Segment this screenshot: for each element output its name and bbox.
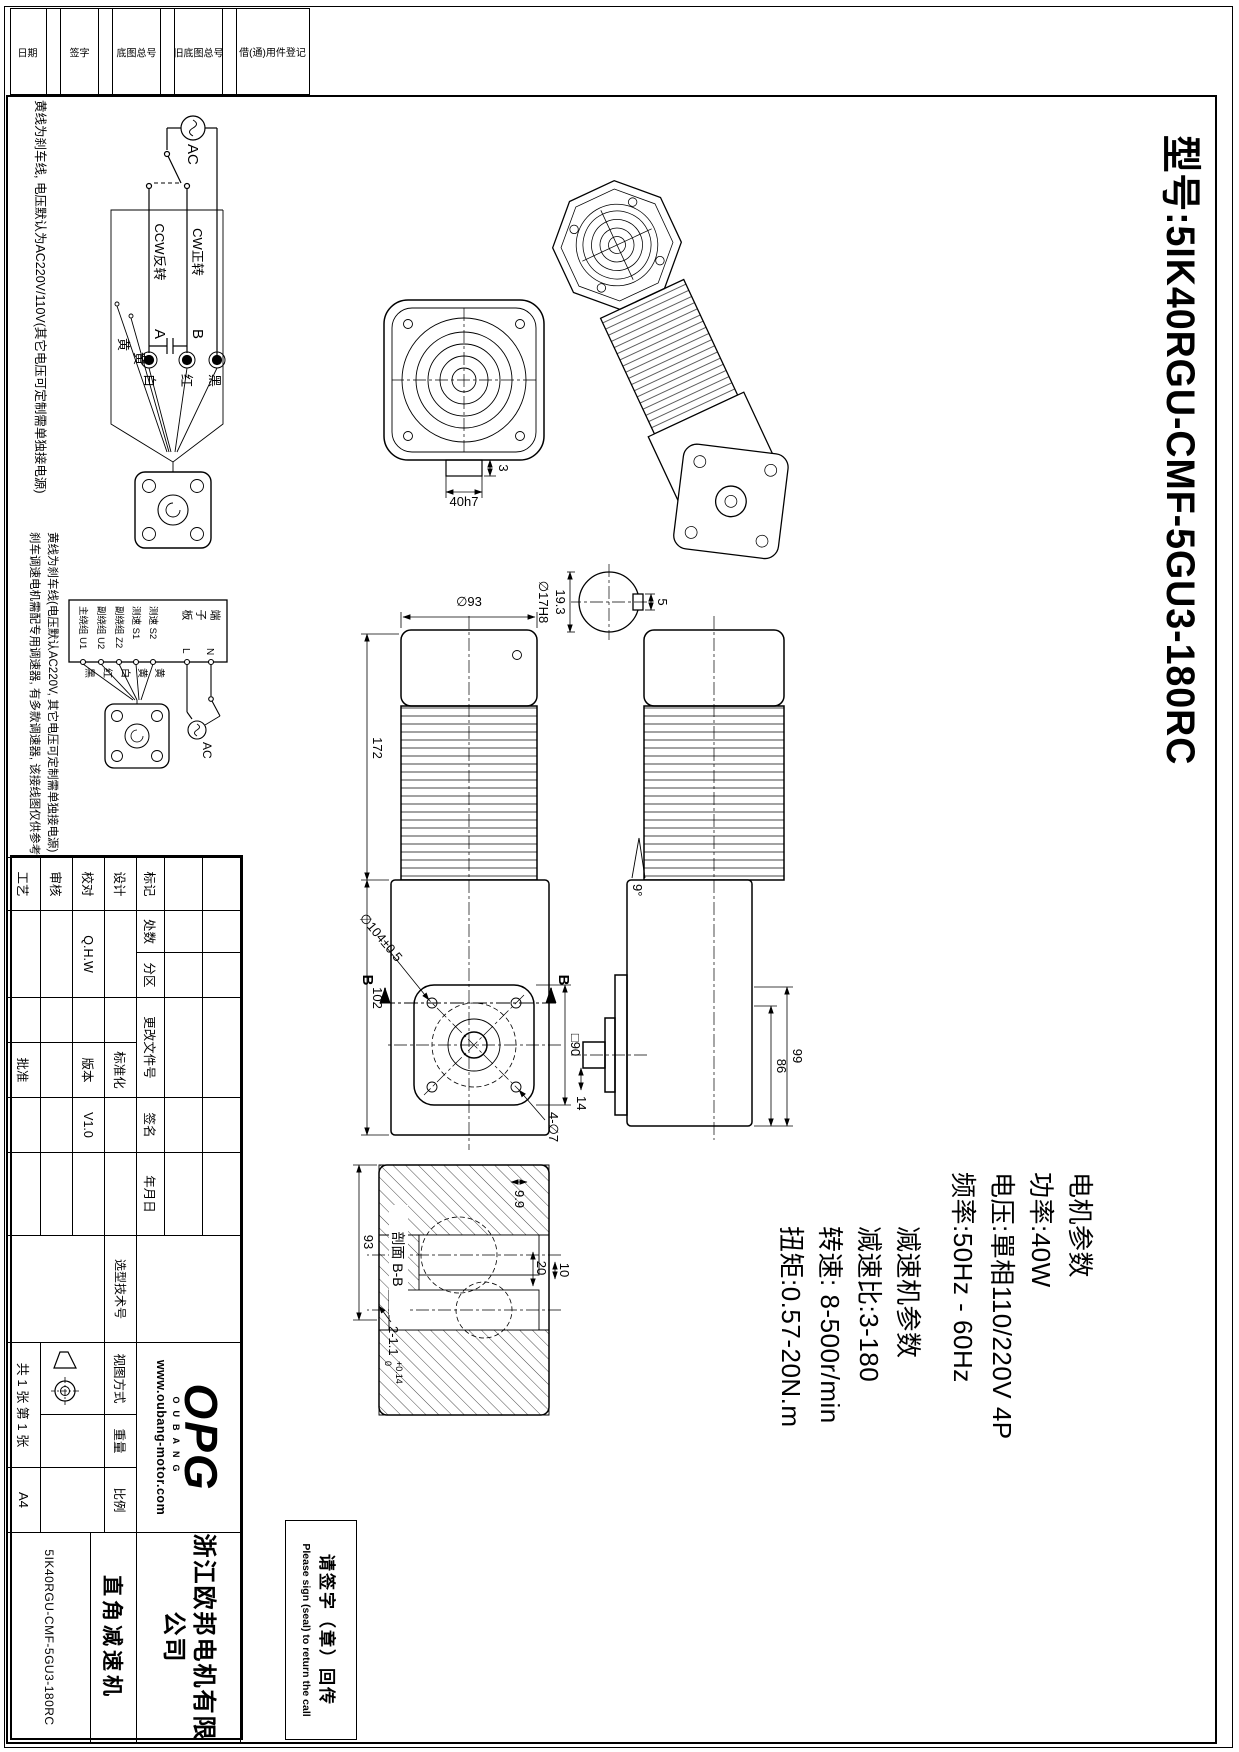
binding-blank xyxy=(99,9,113,94)
page-title: 型号:5IK40RGU-CMF-5GU3-180RC xyxy=(1155,135,1213,765)
rev-cell xyxy=(165,910,203,952)
switch-blade xyxy=(168,156,181,183)
terminal-a-label: A xyxy=(151,329,168,339)
binding-date: 日期 xyxy=(9,9,47,94)
dim-shaft-dia: ∅17H8 xyxy=(536,581,551,623)
wiring2-notes: 黄线为刹车线(电压默认AC220V, 其它电压可定制需单独接电源) 刹车调速电机… xyxy=(25,532,61,855)
tb-drawing-no: 5IK40RGU-CMF-5GU3-180RC xyxy=(8,1532,91,1742)
wire-color-red-2: 红 xyxy=(101,668,114,678)
dim-slot-tol-hi: +0.14 xyxy=(394,1361,404,1384)
dim-key-flat: 19.3 xyxy=(553,589,568,614)
tb-select-no: 选型技术号 xyxy=(105,1235,137,1342)
ccw-label: CCW反转 xyxy=(152,223,167,280)
dim-key-width: 5 xyxy=(655,598,670,605)
tb-process: 工艺 xyxy=(8,857,41,910)
wire-color-yellow-2b: 黄 xyxy=(136,668,149,678)
tb-cell xyxy=(8,1235,105,1342)
motor-parameters: 电机参数 功率:40W 电压:單相110/220V 4P 频率:50Hz - 6… xyxy=(943,1172,1099,1440)
tb-change-doc: 更改文件号 xyxy=(137,997,165,1097)
company-line1: 浙江欧邦电机有限 xyxy=(189,1534,219,1742)
dim-slot-tol-lo: 0 xyxy=(383,1361,393,1366)
tb-signature: 签名 xyxy=(137,1097,165,1152)
company-name: 浙江欧邦电机有限 公司 xyxy=(137,1533,240,1742)
terminal-b-label: B xyxy=(189,329,206,339)
tb-cell xyxy=(8,1152,41,1235)
motor-params-heading: 电机参数 xyxy=(1060,1172,1099,1440)
side-view xyxy=(571,616,793,1140)
motor-frequency: 频率:50Hz - 60Hz xyxy=(943,1172,982,1440)
dim-flange-sq: □90 xyxy=(568,1034,583,1056)
dim-40h7: 40h7 xyxy=(450,494,479,509)
tb-cell xyxy=(41,1152,73,1235)
section-view xyxy=(353,1165,561,1415)
wire-color-yellow-2a: 黄 xyxy=(153,668,166,678)
tb-cell xyxy=(137,1235,241,1342)
tb-cell xyxy=(73,997,105,1042)
wire-color-black-2: 黑 xyxy=(83,668,95,678)
rev-cell xyxy=(203,952,241,997)
tb-cell xyxy=(73,1152,105,1235)
binding-signature: 签字 xyxy=(61,9,99,94)
tb-count: 处数 xyxy=(137,910,165,952)
dim-3: 3 xyxy=(496,464,511,471)
tb-sheets: 共 1 张 第 1 张 xyxy=(8,1342,41,1467)
dim-shaft-len: 14 xyxy=(574,1096,589,1110)
opg-logo-text: OPG xyxy=(179,1383,223,1491)
gear-speed: 转速: 8-500r/min xyxy=(810,1226,849,1428)
wiring-diagram-1 xyxy=(111,116,225,548)
sign-return-cn: 请签字（章）回传 xyxy=(317,1554,342,1706)
tb-scale: 比例 xyxy=(105,1467,137,1532)
rev-cell xyxy=(203,997,241,1097)
tb-cell xyxy=(105,1097,137,1152)
dim-flange-holes: 4-∅7 xyxy=(546,1112,561,1142)
isometric-view xyxy=(521,163,827,598)
wiring2-note1: 黄线为刹车线(电压默认AC220V, 其它电压可定制需单独接电源) xyxy=(43,532,61,855)
motor-flange-1 xyxy=(135,472,211,548)
dim-sec-d3: 10 xyxy=(557,1263,572,1277)
front-view xyxy=(361,612,571,1150)
binding-borrow-record: 借(通)用件登记 xyxy=(237,9,309,94)
rear-fan-view xyxy=(384,300,544,498)
rev-cell xyxy=(203,1152,241,1235)
tb-product-name: 直角减速机 xyxy=(91,1532,137,1742)
tb-paper-size: A4 xyxy=(8,1467,41,1532)
motor-voltage: 电压:單相110/220V 4P xyxy=(982,1172,1021,1440)
dim-sec-d1: 9.9 xyxy=(512,1190,527,1208)
rev-cell xyxy=(165,997,203,1097)
section-label: 剖面 B-B xyxy=(390,1231,406,1286)
tb-version-label: 版本 xyxy=(73,1042,105,1097)
gear-params-heading: 减速机参数 xyxy=(888,1226,927,1428)
dim-motor-len: 172 xyxy=(370,737,385,759)
tb-cell xyxy=(8,910,41,997)
rev-cell xyxy=(165,1152,203,1235)
shaft-key-detail xyxy=(567,564,655,640)
wire-color-white-2: 白 xyxy=(119,668,132,678)
gear-parameters: 减速机参数 减速比:3-180 转速: 8-500r/min 扭矩:0.57-2… xyxy=(771,1226,927,1428)
cw-label: CW正转 xyxy=(190,228,205,276)
drawing-sheet: 40h7 3 5 19.3 ∅17H8 xyxy=(0,0,1239,1752)
wire-color-black-1: 黑 xyxy=(207,374,222,387)
dim-sec-h: 93 xyxy=(361,1235,376,1249)
dim-gear-w: 86 xyxy=(774,1059,789,1073)
tb-view-mode: 视图方式 xyxy=(105,1342,137,1414)
sign-return-en: Please sign (seal) to return the call xyxy=(301,1543,313,1716)
rev-cell xyxy=(203,857,241,910)
tb-design: 设计 xyxy=(105,857,137,910)
binding-blank xyxy=(223,9,237,94)
terminal-board-label: 端子板 xyxy=(151,604,221,622)
tb-mark: 标记 xyxy=(137,857,165,910)
output-flange-iso xyxy=(672,443,789,560)
binding-strip: 借(通)用件登记 旧底图总号 底图总号 签字 日期 xyxy=(10,8,310,95)
rev-cell xyxy=(203,910,241,952)
binding-master-no: 底图总号 xyxy=(113,9,161,94)
tb-cell xyxy=(41,1414,105,1467)
dim-motor-dia: ∅93 xyxy=(456,594,482,609)
tb-approve: 批准 xyxy=(8,1042,41,1097)
tb-designer: Q.H.W xyxy=(73,910,105,997)
tb-cell xyxy=(8,997,41,1042)
rev-cell xyxy=(165,1097,203,1152)
tb-cell xyxy=(41,1097,73,1152)
terminal-z2: 副绕组 Z2 xyxy=(113,606,125,648)
dim-slot: 2-1.1 xyxy=(386,1326,401,1356)
ac-label-2: AC xyxy=(200,742,214,759)
motor-flange-2 xyxy=(105,704,169,768)
ac-label-1: AC xyxy=(184,144,201,165)
gear-torque: 扭矩:0.57-20N.m xyxy=(771,1226,810,1428)
tb-version: V1.0 xyxy=(73,1097,105,1152)
terminal-u2: 副绕组 U2 xyxy=(95,606,107,649)
binding-blank xyxy=(47,9,61,94)
rev-cell xyxy=(165,952,203,997)
tb-company-cell: 浙江欧邦电机有限 公司 xyxy=(137,1532,241,1742)
website: www.oubang-motor.com xyxy=(154,1360,168,1515)
tb-cell xyxy=(41,1042,73,1097)
tb-review: 审核 xyxy=(41,857,73,910)
tb-standardize: 标准化 xyxy=(105,1042,137,1097)
dim-gear-total: 99 xyxy=(790,1049,805,1063)
tb-weight: 重量 xyxy=(105,1414,137,1467)
tb-zone: 分区 xyxy=(137,952,165,997)
opg-logo: OPG OUBANG www.oubang-motor.com xyxy=(137,1343,240,1532)
tb-cell xyxy=(8,1097,41,1152)
section-letter-top: B xyxy=(555,975,572,986)
company-line2: 公司 xyxy=(159,1612,189,1664)
gear-ratio: 减速比:3-180 xyxy=(849,1226,888,1428)
binding-blank xyxy=(161,9,175,94)
motor-power: 功率:40W xyxy=(1021,1172,1060,1440)
gearbox-side xyxy=(627,880,752,1126)
rev-cell xyxy=(165,857,203,910)
wire-color-yellow-1a: 黄 xyxy=(132,352,147,365)
wiring2-note2: 刹车调速电机需配专用调速器, 有多款调速器, 该接线图仅供参考 xyxy=(25,532,43,855)
rev-cell xyxy=(203,1097,241,1152)
section-letter-bottom: B xyxy=(359,975,376,986)
tb-proof: 校对 xyxy=(73,857,105,910)
tb-cell xyxy=(41,910,73,997)
projection-symbol-icon xyxy=(47,1344,99,1414)
wire-color-white-1: 白 xyxy=(142,374,157,387)
wire-color-red-1: 红 xyxy=(179,374,194,387)
terminal-n-label: N xyxy=(204,648,215,655)
shaft-stub xyxy=(446,460,482,476)
wiring1-note: 黄线为刹车线, 电压默认为AC220V/110V(其它电压可定制需单独接电源) xyxy=(32,100,51,494)
tb-cell xyxy=(105,910,137,997)
tb-cell xyxy=(41,997,73,1042)
tb-cell xyxy=(105,997,137,1042)
terminal-s1: 测速 S1 xyxy=(130,606,141,639)
dim-angle: 9° xyxy=(630,884,645,896)
tb-cell xyxy=(105,1152,137,1235)
tb-projection-cell xyxy=(41,1342,105,1414)
binding-old-master-no: 旧底图总号 xyxy=(175,9,223,94)
oubang-logo-text: OUBANG xyxy=(171,1397,181,1479)
tb-logo-cell: OPG OUBANG www.oubang-motor.com xyxy=(137,1342,241,1532)
terminal-l-label: L xyxy=(180,648,191,654)
terminal-u1: 主绕组 U1 xyxy=(77,606,89,649)
title-block: 标记 处数 分区 更改文件号 签名 年月日 设计 标准化 校对 Q.H.W 版本… xyxy=(10,855,243,1740)
dim-gear-len: 102 xyxy=(370,987,385,1009)
wire-color-yellow-1b: 黄 xyxy=(116,338,131,351)
tb-cell xyxy=(41,1467,105,1532)
tb-date: 年月日 xyxy=(137,1152,165,1235)
dim-sec-d2: 20 xyxy=(534,1261,549,1275)
sign-return-box: 请签字（章）回传 Please sign (seal) to return th… xyxy=(285,1520,357,1740)
